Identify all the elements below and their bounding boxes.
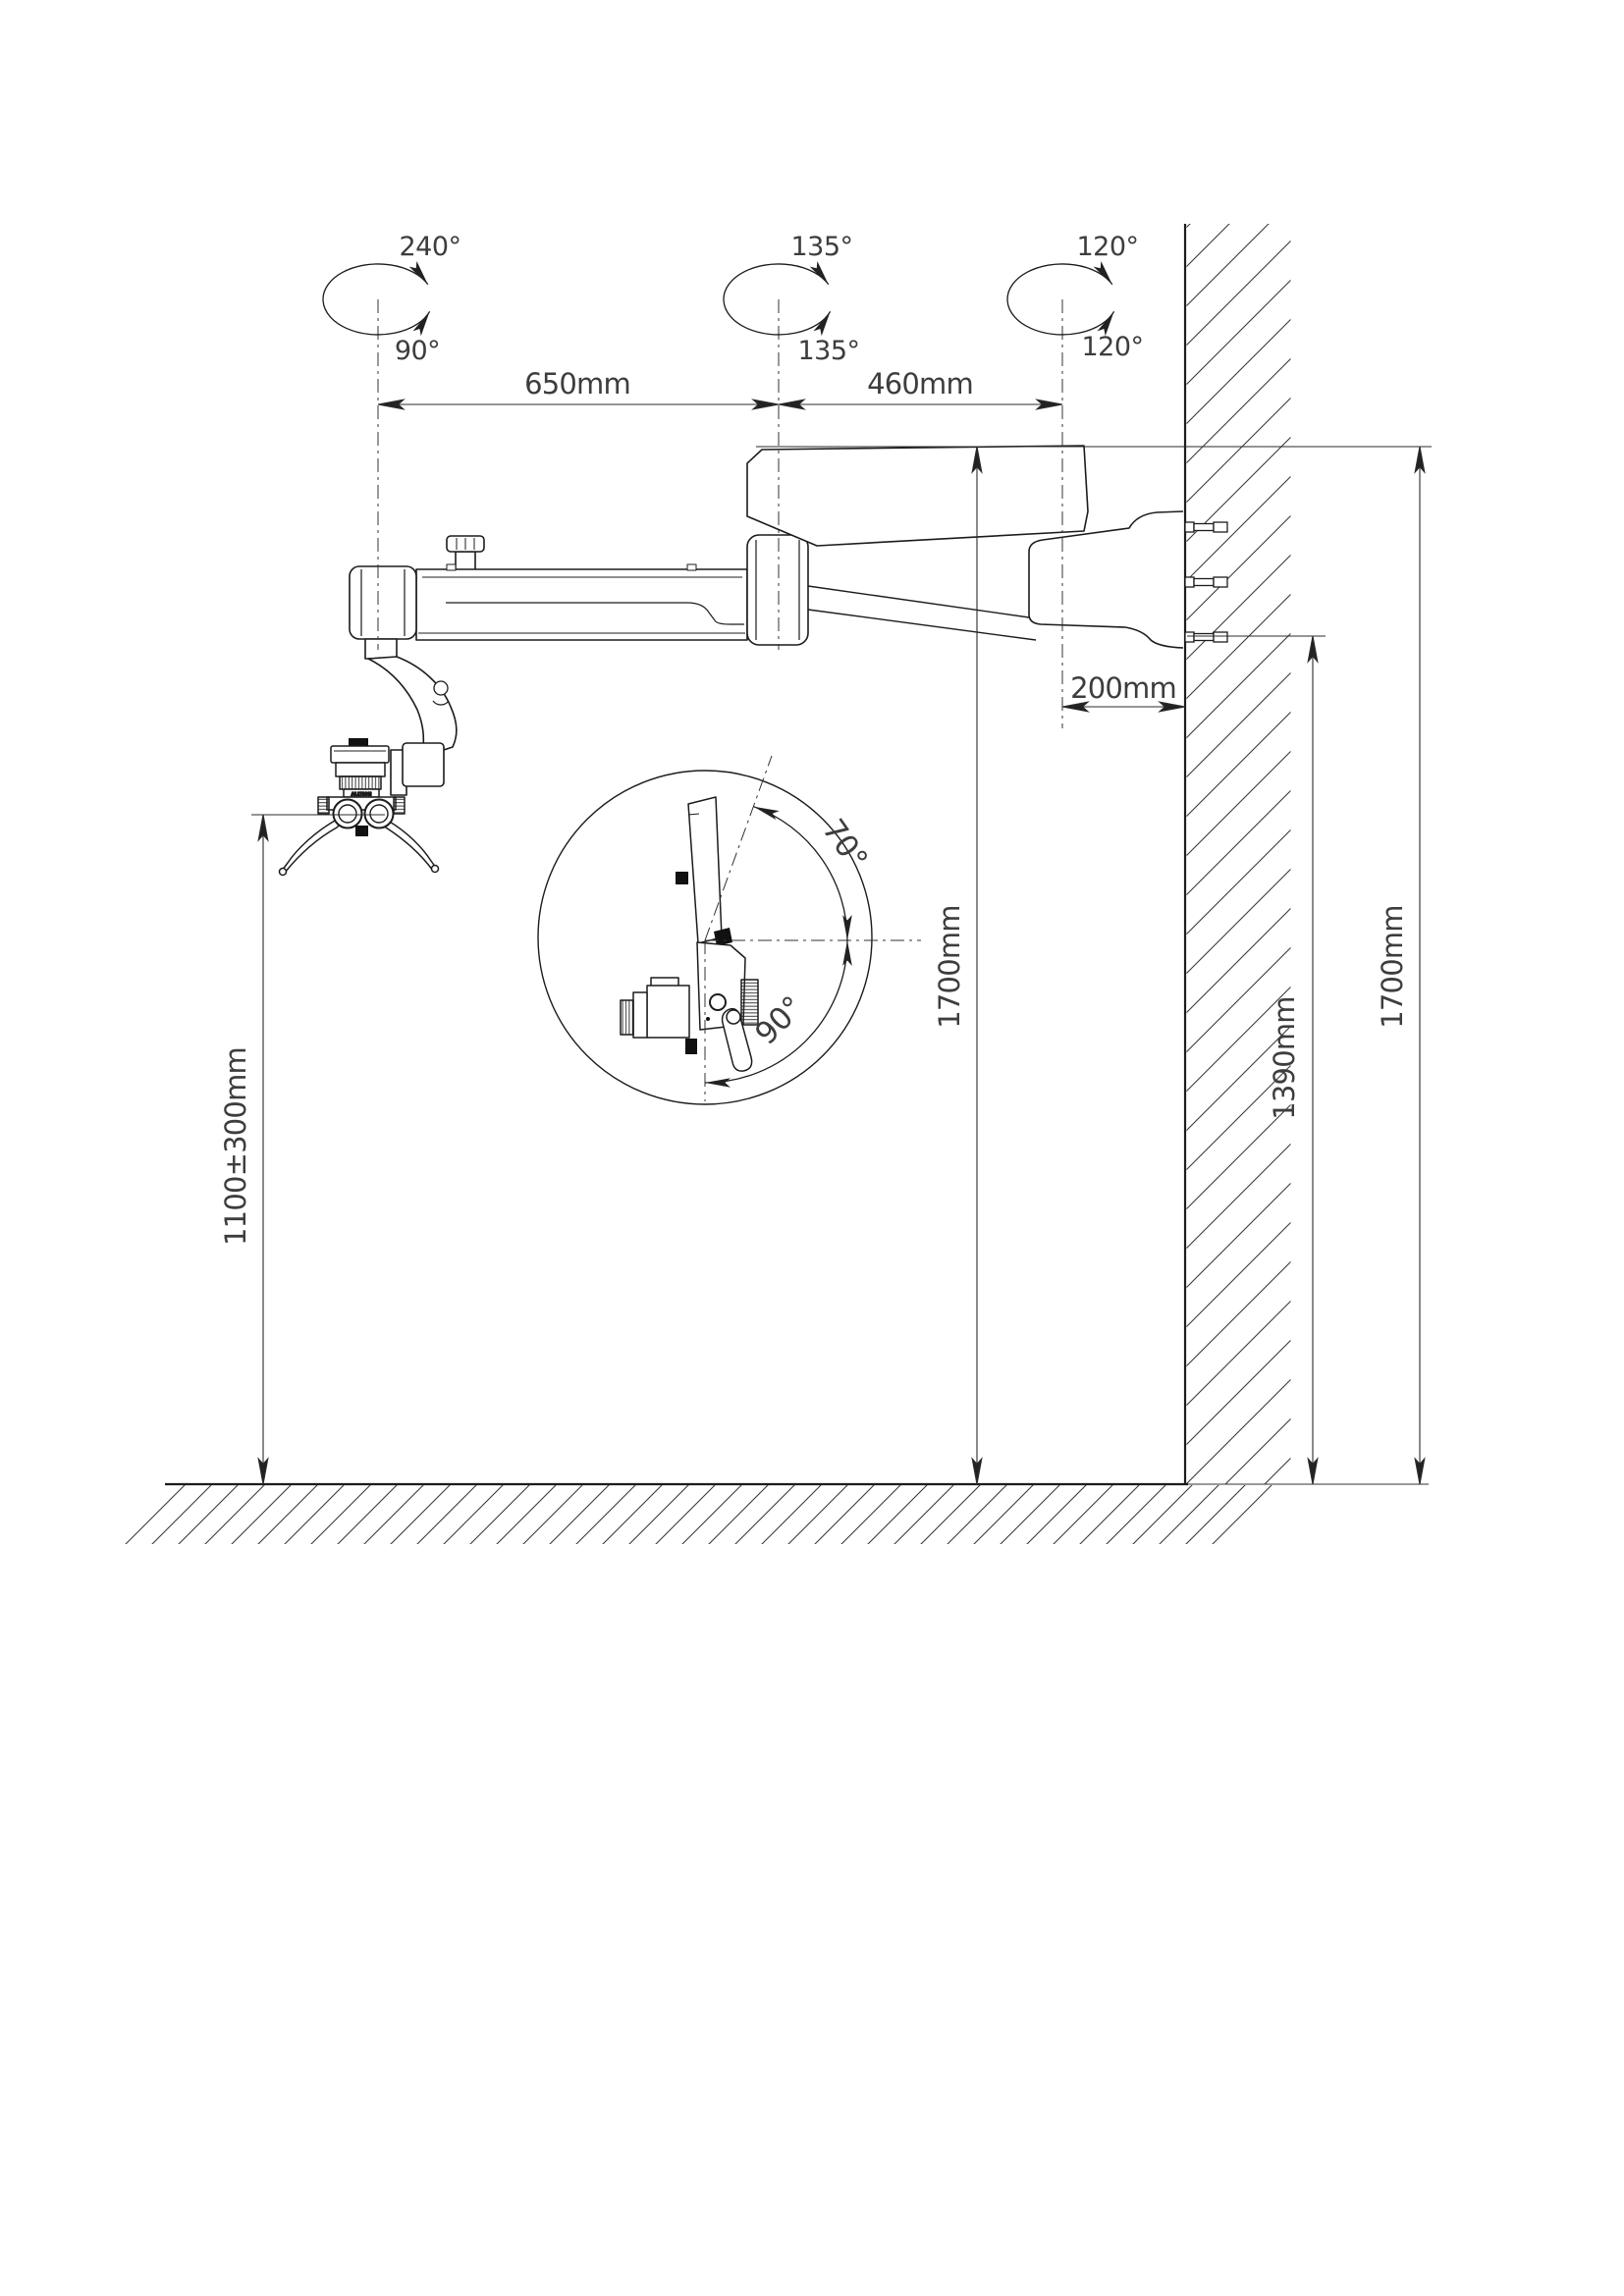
horizontal-arm — [416, 569, 747, 640]
detail-body-circle — [710, 994, 726, 1010]
arm-screw — [687, 564, 696, 570]
dim-label-1390mm: 1390mm — [1268, 996, 1301, 1120]
drop-arm-screw-icon — [434, 681, 448, 695]
detail-objective-cap — [621, 1000, 633, 1035]
dim-200: 200mm — [1062, 671, 1185, 712]
rotation-2-top-label: 135° — [790, 232, 852, 262]
dim-1700-inner: 1700mm — [933, 447, 982, 1484]
rotation-symbol-2: 135° 135° — [724, 232, 860, 366]
rotation-3-bottom-label: 120° — [1081, 332, 1143, 362]
tilt-detail-view: 70° 90° — [538, 756, 921, 1104]
head-mount-block — [403, 743, 444, 786]
focus-knurl-ring — [340, 776, 381, 789]
right-side-knob — [394, 797, 405, 814]
technical-drawing: ALLTION 240° 90° 135° 135° — [0, 0, 1624, 2296]
drop-arm-curve — [368, 657, 457, 750]
arm-assembly — [350, 446, 1183, 795]
dim-label-1700mm-inner: 1700mm — [933, 905, 966, 1029]
dim-label-200mm: 200mm — [1070, 671, 1176, 705]
dim-label-1700mm-outer: 1700mm — [1376, 905, 1409, 1029]
arm-screw — [447, 564, 456, 570]
left-side-knob — [318, 797, 329, 814]
dim-label-460mm: 460mm — [867, 367, 973, 400]
detail-knurl-wheel — [741, 980, 758, 1025]
dim-label-1100-300mm: 1100±300mm — [219, 1047, 252, 1246]
rotation-3-top-label: 120° — [1076, 232, 1138, 262]
bolt-icon — [1185, 522, 1227, 532]
head-bottom-knob — [355, 826, 368, 836]
detail-lever-pivot — [727, 1010, 740, 1024]
wall-hatching — [1187, 224, 1291, 1484]
rotation-1-top-label: 240° — [399, 232, 460, 262]
rotation-1-bottom-label: 90° — [395, 336, 440, 366]
dim-1100: 1100±300mm — [219, 815, 385, 1484]
dim-650-460: 650mm 460mm — [378, 367, 1062, 409]
right-eyepiece-inner — [370, 805, 388, 823]
floor-hatching — [114, 1485, 1286, 1544]
wall-section — [1185, 224, 1291, 1484]
dim-1700-outer: 1700mm — [1376, 447, 1425, 1484]
right-handle — [384, 821, 437, 872]
head-body — [336, 763, 385, 776]
rotation-symbol-1: 240° 90° — [323, 232, 461, 366]
detail-microscope — [621, 797, 758, 1071]
detail-objective-box — [647, 986, 689, 1038]
left-eyepiece-inner — [339, 805, 356, 823]
bolt-icon — [1185, 632, 1227, 642]
front-joint-block — [350, 566, 416, 639]
head-top-plate — [331, 746, 389, 763]
parallel-link-lines — [808, 586, 1036, 640]
detail-angle-70-label: 70° — [815, 813, 874, 876]
detail-objective-mid — [633, 992, 647, 1038]
bolt-icon — [1185, 577, 1227, 587]
drop-arm-collar — [365, 639, 397, 659]
rotation-2-bottom-label: 135° — [797, 336, 859, 366]
floor-section — [114, 1484, 1429, 1544]
left-handle-tip — [280, 869, 287, 876]
wall-support-beam — [747, 446, 1088, 546]
detail-column — [688, 797, 722, 943]
left-handle — [281, 821, 339, 874]
drawing-page: ALLTION 240° 90° 135° 135° — [0, 0, 1624, 2296]
dim-label-650mm: 650mm — [524, 367, 630, 400]
detail-body-dot — [706, 1017, 710, 1021]
detail-bottom-tab — [685, 1039, 697, 1054]
right-handle-tip — [432, 866, 439, 873]
rotation-symbol-3: 120° 120° — [1007, 232, 1144, 362]
detail-side-tab — [676, 872, 688, 884]
